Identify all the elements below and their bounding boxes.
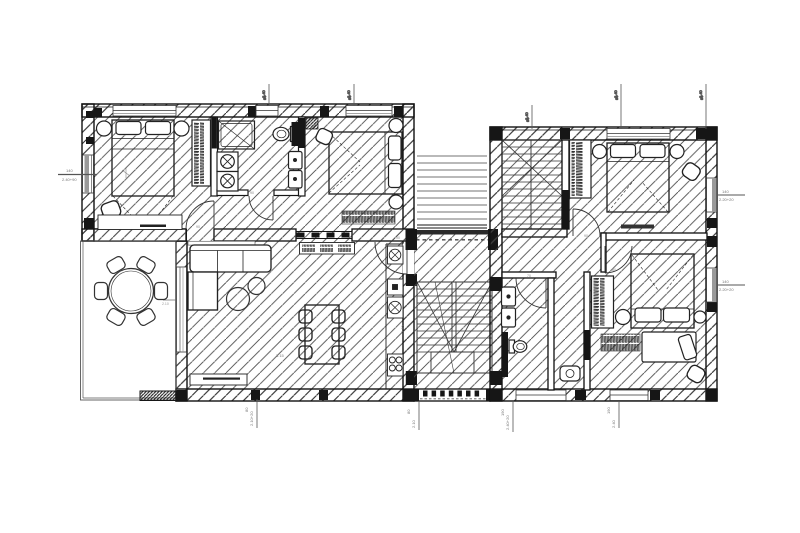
- svg-text:90: 90: [250, 191, 254, 195]
- svg-text:2.40: 2.40: [613, 89, 618, 98]
- svg-text:2.40: 2.40: [346, 89, 351, 98]
- svg-text:2.40: 2.40: [611, 419, 616, 428]
- svg-text:2.10+20: 2.10+20: [249, 411, 254, 426]
- svg-text:2.40: 2.40: [261, 89, 266, 98]
- svg-text:90: 90: [396, 236, 400, 240]
- svg-text:190: 190: [606, 407, 611, 414]
- svg-text:140: 140: [722, 189, 729, 194]
- svg-text:80: 80: [406, 409, 411, 414]
- svg-text:2.40+20: 2.40+20: [505, 415, 510, 430]
- svg-text:80: 80: [612, 268, 616, 272]
- svg-text:2.40: 2.40: [698, 89, 703, 98]
- svg-text:2.20+20: 2.20+20: [719, 287, 734, 292]
- svg-text:140: 140: [722, 279, 729, 284]
- svg-text:2.40: 2.40: [524, 111, 529, 120]
- svg-text:90: 90: [584, 234, 588, 238]
- svg-text:2.20+20: 2.20+20: [719, 197, 734, 202]
- svg-text:2.40+90: 2.40+90: [62, 177, 77, 182]
- svg-text:90: 90: [196, 225, 200, 229]
- svg-text:140: 140: [66, 168, 73, 173]
- svg-text:70: 70: [527, 274, 531, 278]
- svg-text:2.10: 2.10: [162, 302, 169, 306]
- svg-text:3.15: 3.15: [276, 353, 285, 358]
- svg-text:80: 80: [244, 407, 249, 412]
- svg-text:3.15: 3.15: [400, 324, 405, 333]
- svg-text:2.10: 2.10: [411, 419, 416, 428]
- svg-text:190: 190: [500, 409, 505, 416]
